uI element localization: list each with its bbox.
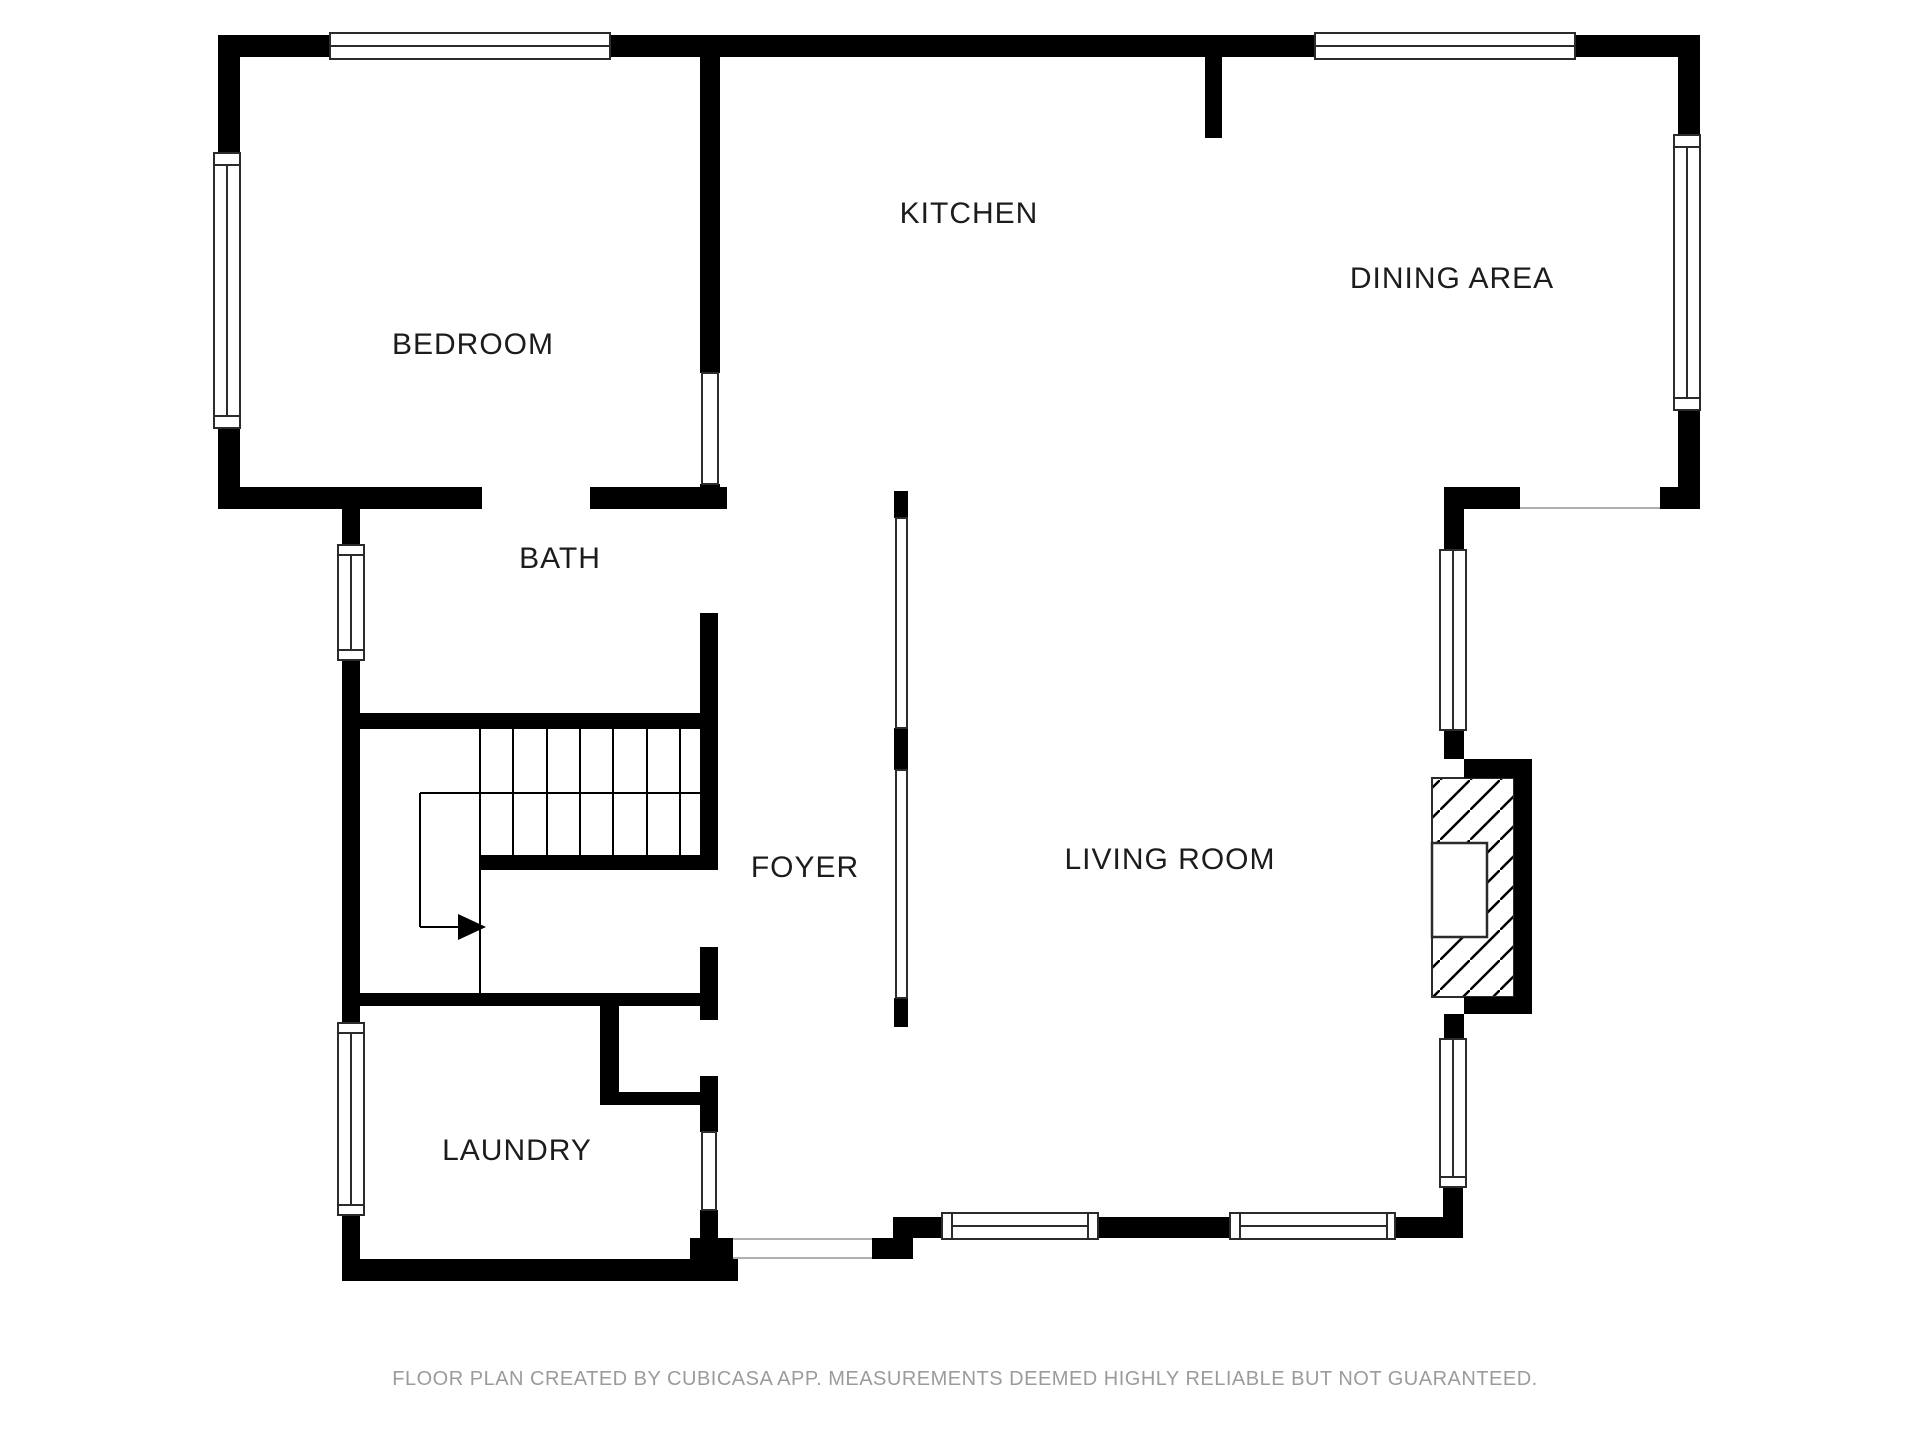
window-sill <box>942 1213 952 1239</box>
room-label-laundry: LAUNDRY <box>442 1134 592 1167</box>
window-sill <box>214 153 240 165</box>
wall-segment <box>872 1238 913 1259</box>
wall-segment <box>1514 759 1532 1014</box>
room-label-kitchen: KITCHEN <box>900 197 1039 230</box>
floorplan-canvas: BEDROOMKITCHENDINING AREABATHFOYERLIVING… <box>0 0 1920 1440</box>
window-sill <box>1088 1213 1098 1239</box>
wall-segment <box>1444 487 1520 509</box>
room-label-living-room: LIVING ROOM <box>1064 843 1275 876</box>
window-sill <box>1230 1213 1240 1239</box>
floorplan-drawing: BEDROOMKITCHENDINING AREABATHFOYERLIVING… <box>0 0 1920 1440</box>
wall-segment <box>342 1259 738 1281</box>
wall-segment <box>700 1210 718 1258</box>
fireplace <box>1432 778 1514 997</box>
room-label-dining-area: DINING AREA <box>1350 262 1554 295</box>
window-sill <box>1674 135 1700 147</box>
wall-segment <box>1098 1217 1230 1238</box>
window-sill <box>338 1023 364 1033</box>
window-sill <box>338 545 364 555</box>
footer-disclaimer: FLOOR PLAN CREATED BY CUBICASA APP. MEAS… <box>392 1368 1537 1390</box>
wall-segment <box>1444 1014 1464 1039</box>
wall-segment <box>1444 730 1464 759</box>
wall-segment <box>1443 1187 1463 1237</box>
window-sill <box>214 416 240 428</box>
interior-window-laundry <box>702 1132 716 1210</box>
wall-segment <box>218 35 240 153</box>
wall-segment <box>894 491 908 518</box>
wall-segment <box>342 487 360 545</box>
window-sill <box>1440 1177 1466 1187</box>
wall-segment <box>700 484 720 509</box>
window-sill <box>338 650 364 660</box>
wall-segment <box>894 998 908 1027</box>
wall-segment <box>1205 55 1222 138</box>
stair-direction-arrow <box>458 914 486 940</box>
room-divider-upper <box>896 518 907 728</box>
wall-segment <box>1678 35 1700 135</box>
wall-segment <box>1444 509 1464 550</box>
window-sill <box>1387 1213 1395 1239</box>
wall-segment <box>600 993 619 1105</box>
wall-segment <box>600 1092 718 1105</box>
wall-segment <box>700 613 718 870</box>
room-label-bedroom: BEDROOM <box>392 328 554 361</box>
wall-segment <box>350 993 718 1006</box>
wall-segment <box>700 947 718 1020</box>
wall-segment <box>700 35 720 373</box>
interior-window-bedroom <box>702 373 718 484</box>
wall-segment <box>1464 997 1532 1014</box>
window-sill <box>1674 398 1700 410</box>
wall-segment <box>1678 410 1700 509</box>
room-label-foyer: FOYER <box>751 851 859 884</box>
wall-segment <box>350 713 718 729</box>
room-label-bath: BATH <box>519 542 601 575</box>
wall-segment <box>893 1217 942 1238</box>
fireplace-firebox <box>1432 843 1487 937</box>
window-sill <box>338 1205 364 1215</box>
wall-segment <box>480 855 718 870</box>
room-labels: BEDROOMKITCHENDINING AREABATHFOYERLIVING… <box>392 197 1554 1167</box>
wall-segment <box>894 728 908 770</box>
room-divider-lower <box>896 770 907 998</box>
